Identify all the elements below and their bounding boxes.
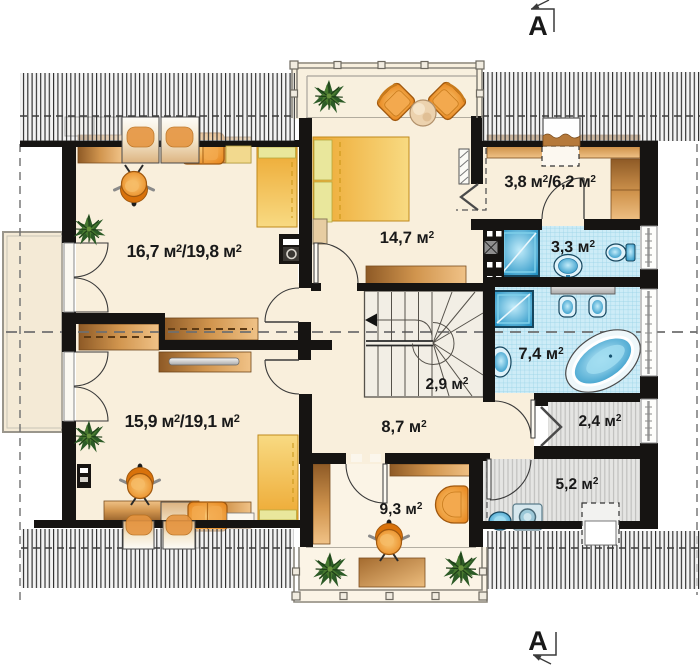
svg-text:A: A xyxy=(528,626,548,656)
svg-text:9,3 м2: 9,3 м2 xyxy=(380,501,423,518)
svg-text:7,4 м2: 7,4 м2 xyxy=(518,345,564,363)
svg-text:2,4 м2: 2,4 м2 xyxy=(579,413,622,430)
svg-text:5,2 м2: 5,2 м2 xyxy=(556,476,599,493)
svg-text:3,3 м2: 3,3 м2 xyxy=(551,239,596,256)
svg-text:15,9 м2/19,1 м2: 15,9 м2/19,1 м2 xyxy=(125,411,240,431)
svg-text:16,7 м2/19,8 м2: 16,7 м2/19,8 м2 xyxy=(127,241,242,261)
svg-text:8,7 м2: 8,7 м2 xyxy=(381,418,427,436)
svg-text:2,9 м2: 2,9 м2 xyxy=(426,376,469,393)
svg-text:3,8 м2/6,2 м2: 3,8 м2/6,2 м2 xyxy=(504,173,596,191)
svg-text:14,7 м2: 14,7 м2 xyxy=(380,229,435,247)
svg-text:A: A xyxy=(528,11,548,41)
